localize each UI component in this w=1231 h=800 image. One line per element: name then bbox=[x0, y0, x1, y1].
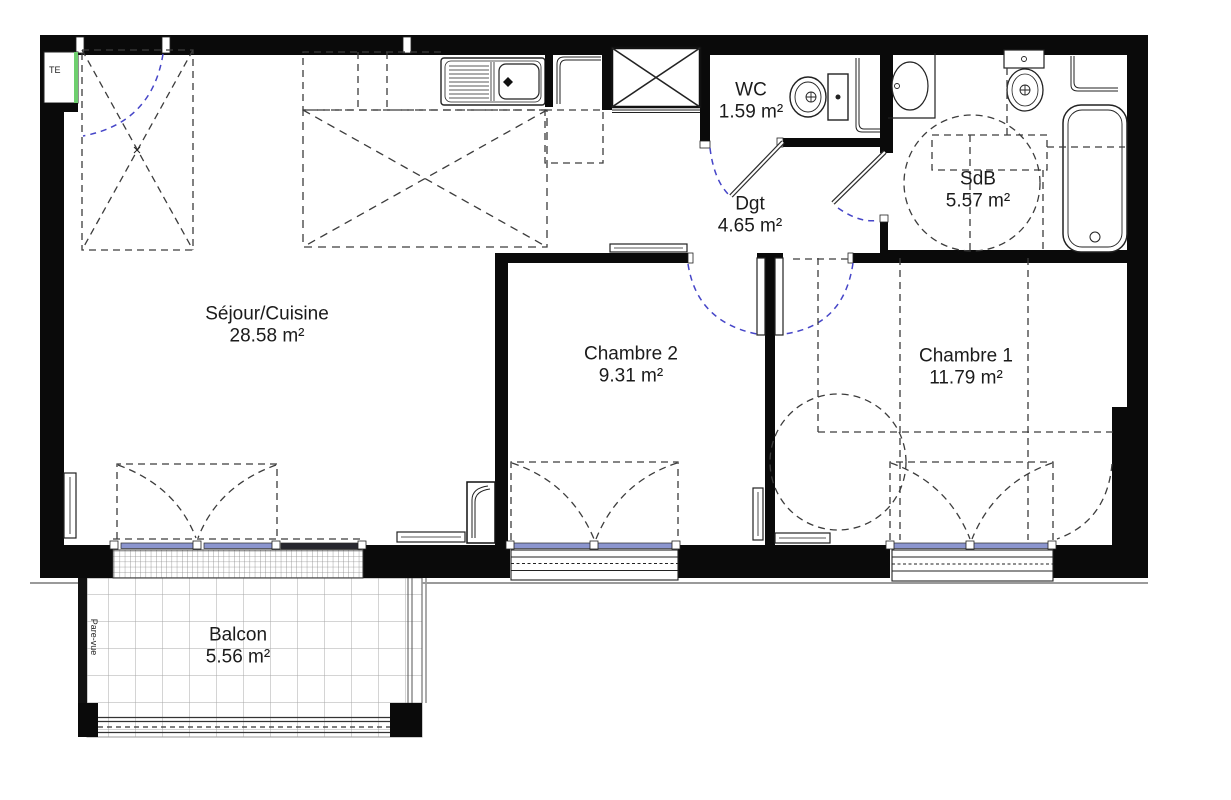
room-label-wc: WC 1.59 m² bbox=[719, 80, 783, 125]
room-label-dgt: Dgt 4.65 m² bbox=[718, 194, 782, 239]
radiators bbox=[64, 244, 830, 543]
te-label: TE bbox=[49, 65, 61, 75]
appliance-dashed bbox=[545, 110, 603, 163]
chambre2-window-dashed bbox=[511, 462, 678, 540]
room-label-chambre-2: Chambre 2 9.31 m² bbox=[584, 344, 678, 389]
sdb-door bbox=[833, 152, 885, 221]
balcony-post-left bbox=[78, 703, 98, 737]
room-label-balcon: Balcon 5.56 m² bbox=[206, 625, 270, 670]
room-area: 5.57 m² bbox=[946, 191, 1010, 213]
room-area: 28.58 m² bbox=[205, 326, 329, 348]
bathtub-icon bbox=[1063, 105, 1127, 252]
kitchen-island-dashed bbox=[303, 110, 547, 247]
room-name: Séjour/Cuisine bbox=[205, 304, 329, 326]
floor-plan-drawing bbox=[0, 0, 1231, 800]
room-name: Chambre 1 bbox=[919, 346, 1013, 368]
electrical-panel-niche bbox=[40, 52, 78, 112]
room-area: 4.65 m² bbox=[718, 216, 782, 238]
te-green-line bbox=[74, 52, 78, 103]
fixed-glazing bbox=[281, 543, 361, 549]
chambre1-window-sill bbox=[892, 550, 1053, 581]
wall-niche-unit bbox=[467, 482, 495, 543]
wc-tall-unit-icon bbox=[856, 58, 880, 132]
washbasin-counter bbox=[888, 53, 935, 118]
french-door-dashed bbox=[113, 464, 363, 539]
wc-door-swing-arc bbox=[710, 148, 730, 196]
pare-vue-label: Pare-vue bbox=[89, 619, 99, 656]
room-name: SdB bbox=[946, 169, 1010, 191]
room-label-sejour-cuisine: Séjour/Cuisine 28.58 m² bbox=[205, 304, 329, 349]
sdb-door-swing-arc bbox=[838, 208, 879, 221]
wc-door bbox=[710, 142, 783, 196]
kitchen-sink bbox=[441, 58, 545, 105]
kitchen-partition bbox=[545, 48, 553, 107]
room-area: 1.59 m² bbox=[719, 102, 783, 124]
toilet-icon bbox=[790, 74, 848, 120]
chambre2-door bbox=[688, 253, 765, 335]
tall-unit-icon bbox=[557, 57, 601, 104]
sdb-tall-unit-icon bbox=[1071, 56, 1118, 91]
chambre1-door bbox=[775, 253, 853, 335]
room-area: 9.31 m² bbox=[584, 366, 678, 388]
chambre1-window-dashed bbox=[890, 462, 1112, 540]
room-label-sdb: SdB 5.57 m² bbox=[946, 169, 1010, 214]
window-glazing bbox=[121, 543, 1052, 549]
chambre2-door-swing-arc bbox=[688, 264, 757, 334]
room-name: Dgt bbox=[718, 194, 782, 216]
room-name: WC bbox=[719, 80, 783, 102]
bed-and-circulation-dashed bbox=[770, 258, 1113, 540]
floor-plan: Séjour/Cuisine 28.58 m² Chambre 2 9.31 m… bbox=[0, 0, 1231, 800]
threshold-hatch bbox=[113, 550, 363, 578]
room-name: Chambre 2 bbox=[584, 344, 678, 366]
chambre2-window-sill bbox=[511, 550, 678, 580]
balcony-post-right bbox=[390, 703, 422, 737]
pedestal-washbasin-icon bbox=[1004, 50, 1044, 111]
room-area: 11.79 m² bbox=[919, 368, 1013, 390]
room-area: 5.56 m² bbox=[206, 647, 270, 669]
technical-duct bbox=[612, 48, 700, 113]
room-name: Balcon bbox=[206, 625, 270, 647]
room-label-chambre-1: Chambre 1 11.79 m² bbox=[919, 346, 1013, 391]
